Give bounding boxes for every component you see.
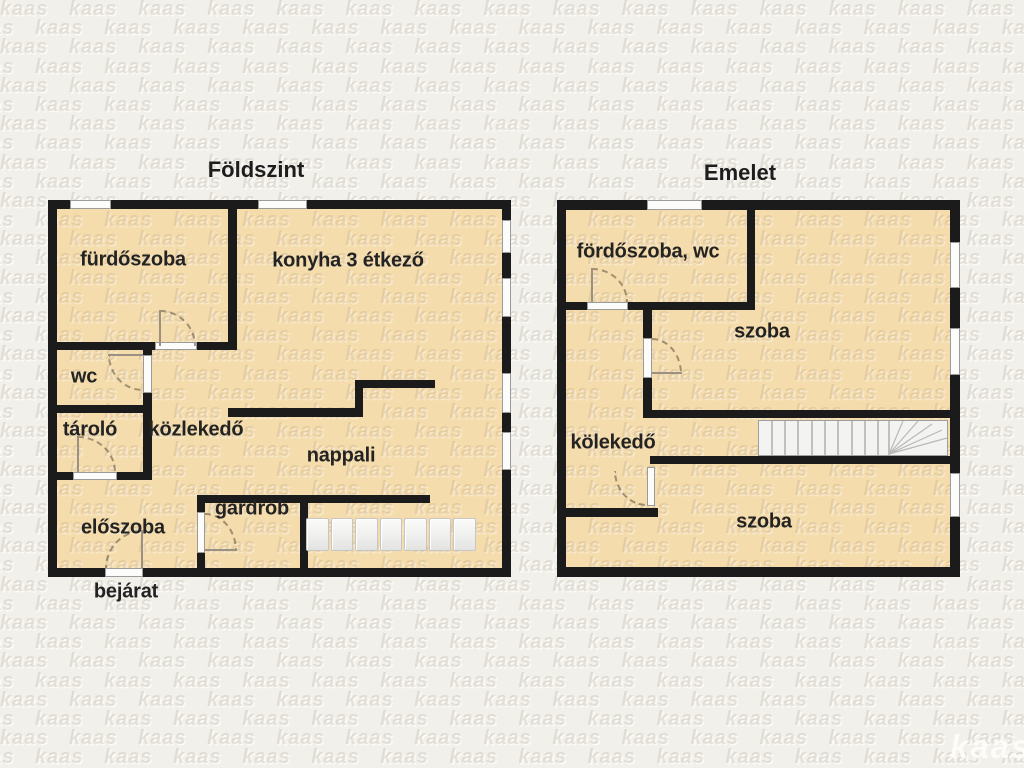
closet-cell — [453, 518, 476, 551]
door-swing-arc — [652, 338, 682, 374]
upper-floor-title: Emelet — [704, 160, 776, 186]
label-entrance: bejárat — [94, 581, 158, 604]
room-label-bathroom-wc: fördőszoba, wc — [577, 241, 720, 264]
closet-cell — [380, 518, 403, 551]
window — [950, 473, 960, 517]
room-label-storage: tároló — [63, 419, 117, 442]
door-leaf-line — [159, 310, 161, 346]
door-leaf-line — [591, 268, 593, 302]
door-leaf — [643, 338, 652, 378]
wall — [747, 210, 755, 302]
wall — [57, 342, 237, 350]
wall — [355, 380, 363, 417]
wall — [566, 508, 658, 517]
door-leaf — [587, 302, 628, 310]
closet-cell — [306, 518, 329, 551]
window — [647, 200, 702, 210]
wall — [363, 380, 435, 388]
room-label-hallway-upper: kölekedő — [570, 432, 655, 455]
window — [258, 200, 307, 209]
door-leaf — [647, 467, 655, 506]
wall — [228, 209, 237, 350]
door-swing-arc — [592, 268, 628, 302]
entrance-door-leaf — [105, 568, 143, 577]
room-label-living-room: nappali — [307, 445, 376, 468]
door-leaf-line — [205, 549, 237, 551]
room-label-entry-hall: előszoba — [81, 517, 165, 540]
wall — [228, 408, 363, 417]
staircase — [758, 420, 948, 456]
window — [502, 278, 511, 317]
wall — [57, 405, 152, 413]
closet-cells — [305, 517, 477, 552]
door-leaf — [73, 472, 117, 480]
door-swing-arc — [614, 471, 647, 506]
door-swing-arc — [160, 310, 196, 346]
floorplan-image: kaas kaas kaas kaas kaas kaas kaas kaas … — [0, 0, 1024, 768]
brand-logo: kaas — [950, 728, 1024, 766]
window — [950, 242, 960, 288]
room-label-room-lower: szoba — [736, 511, 792, 534]
door-leaf — [143, 355, 152, 393]
window — [950, 328, 960, 375]
room-label-wc: wc — [71, 366, 97, 389]
room-label-kitchen-dining: konyha 3 étkező — [272, 250, 424, 273]
wall — [643, 410, 950, 418]
door-leaf-line — [652, 372, 682, 374]
wall — [557, 567, 960, 577]
wall — [557, 200, 960, 210]
closet-cell — [404, 518, 427, 551]
door-swing-arc — [108, 355, 143, 391]
closet-cell — [355, 518, 378, 551]
window — [502, 373, 511, 413]
room-label-hallway: közlekedő — [149, 419, 244, 442]
plan-linework: Földszint Emelet — [0, 0, 1024, 768]
closet-cell — [429, 518, 452, 551]
ground-floor-title: Földszint — [208, 157, 305, 183]
wall — [48, 200, 57, 577]
window — [502, 432, 511, 470]
window — [70, 200, 111, 209]
wall — [557, 200, 566, 577]
door-leaf — [197, 512, 205, 553]
wall — [650, 456, 950, 464]
closet-cell — [331, 518, 354, 551]
door-leaf-line — [108, 354, 143, 356]
room-label-wardrobe: gardrób — [215, 498, 289, 521]
window — [502, 220, 511, 253]
room-label-bathroom: fürdőszoba — [80, 249, 186, 272]
room-label-room-upper: szoba — [734, 321, 790, 344]
